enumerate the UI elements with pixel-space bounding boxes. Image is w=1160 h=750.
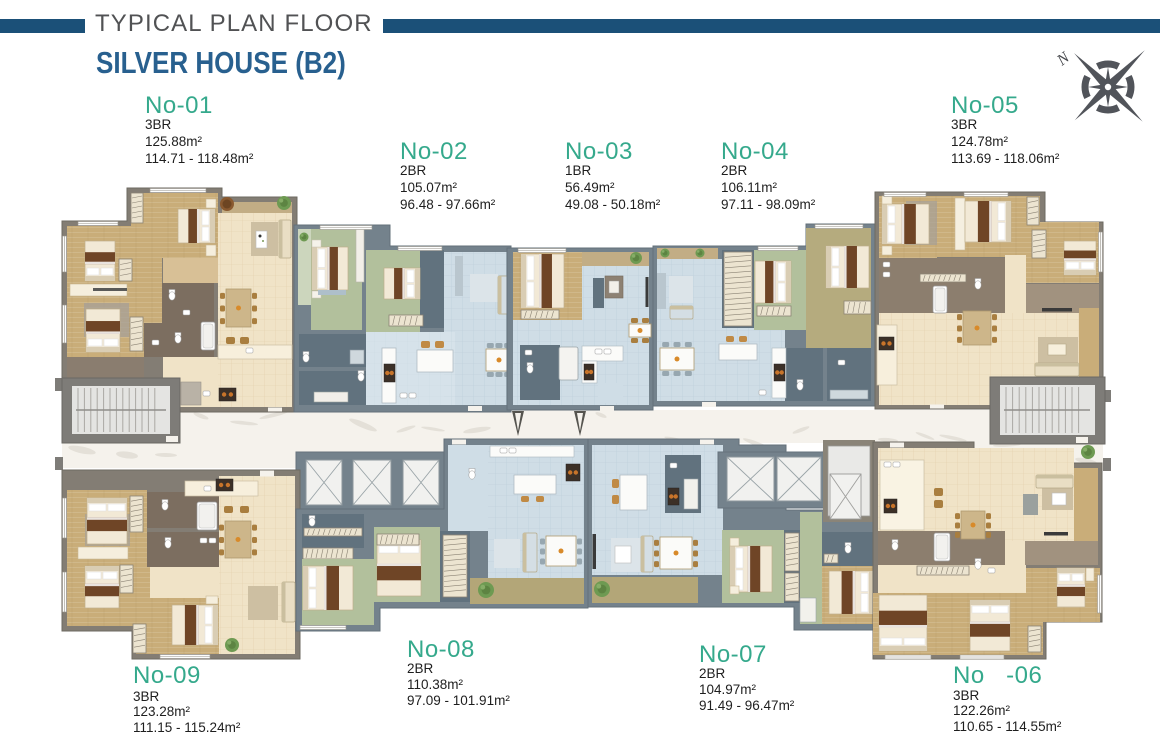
svg-text:N: N (1053, 48, 1074, 69)
